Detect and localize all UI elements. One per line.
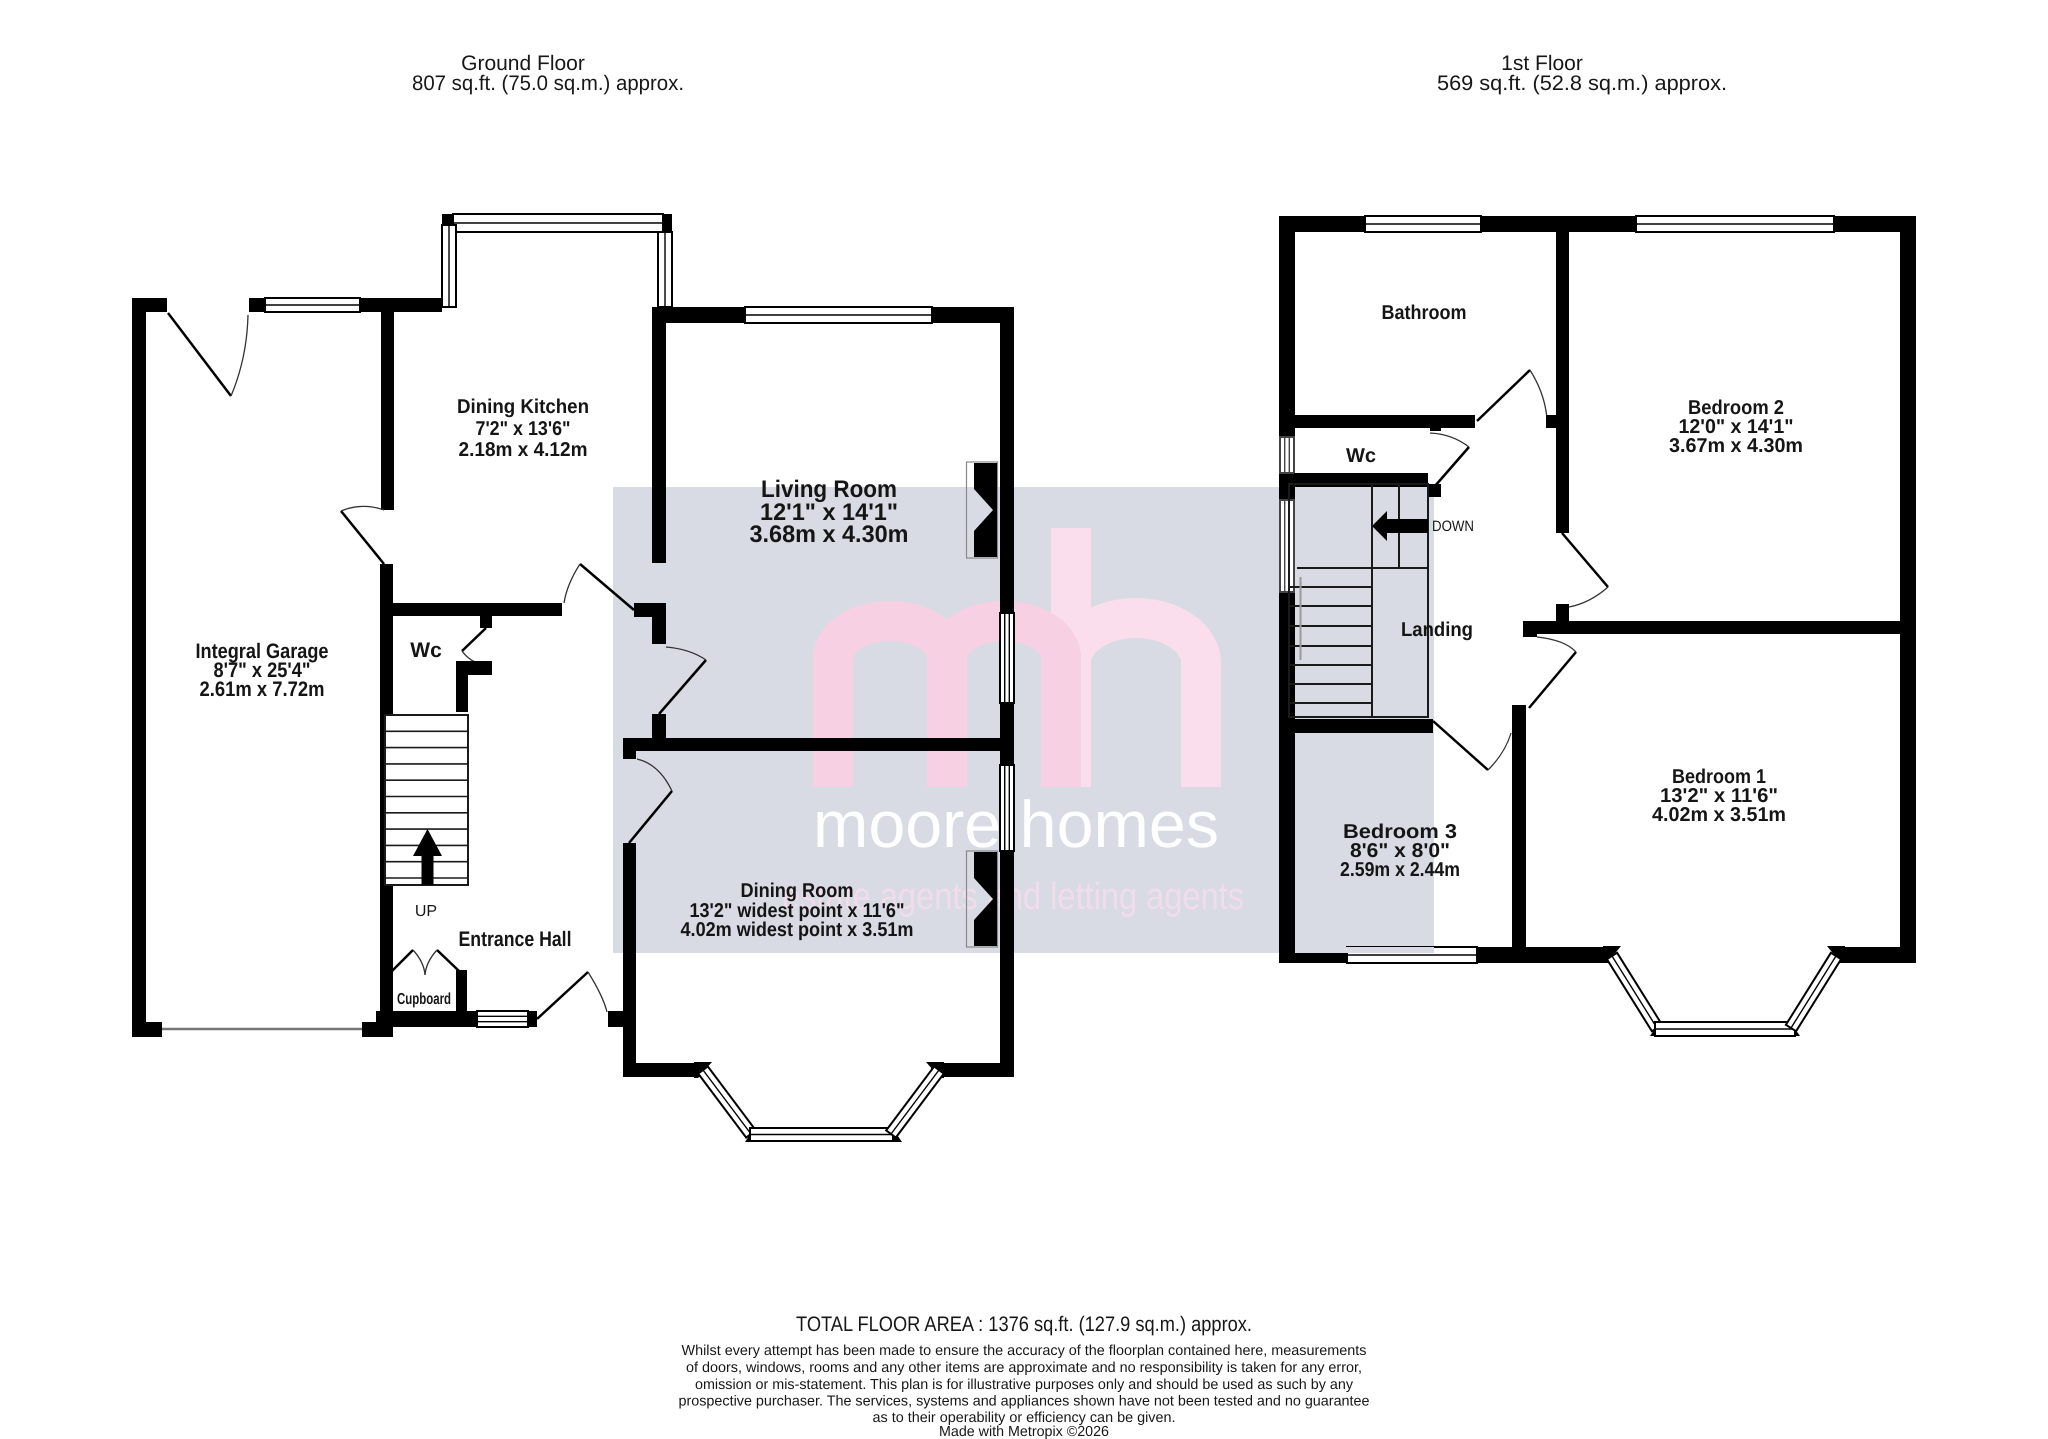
svg-text:4.02m widest point x 3.51m: 4.02m widest point x 3.51m [681, 919, 914, 941]
svg-text:Dining Kitchen: Dining Kitchen [457, 396, 589, 418]
svg-text:Made with Metropix ©2026: Made with Metropix ©2026 [939, 1424, 1109, 1439]
svg-text:807 sq.ft. (75.0 sq.m.) approx: 807 sq.ft. (75.0 sq.m.) approx. [412, 72, 684, 95]
svg-text:Whilst every attempt has been: Whilst every attempt has been made to en… [682, 1343, 1367, 1359]
svg-text:2.61m x 7.72m: 2.61m x 7.72m [200, 678, 325, 701]
svg-text:Wc: Wc [410, 639, 442, 662]
svg-text:Cupboard: Cupboard [397, 991, 451, 1008]
svg-text:DOWN: DOWN [1432, 518, 1474, 535]
svg-text:Entrance Hall: Entrance Hall [459, 928, 572, 951]
svg-text:Landing: Landing [1401, 619, 1473, 641]
svg-text:prospective purchaser. The ser: prospective purchaser. The services, sys… [679, 1394, 1370, 1410]
svg-text:TOTAL FLOOR AREA : 1376 sq.ft.: TOTAL FLOOR AREA : 1376 sq.ft. (127.9 sq… [796, 1313, 1252, 1336]
svg-text:Bathroom: Bathroom [1382, 302, 1467, 324]
svg-text:omission or mis-statement. Thi: omission or mis-statement. This plan is … [695, 1377, 1354, 1393]
svg-text:2.59m x 2.44m: 2.59m x 2.44m [1340, 859, 1460, 881]
svg-text:569 sq.ft. (52.8 sq.m.) approx: 569 sq.ft. (52.8 sq.m.) approx. [1437, 72, 1727, 95]
svg-text:Dining Room: Dining Room [741, 880, 854, 902]
svg-text:UP: UP [415, 903, 437, 920]
svg-text:of doors, windows, rooms and a: of doors, windows, rooms and any other i… [686, 1360, 1362, 1376]
svg-text:4.02m x 3.51m: 4.02m x 3.51m [1652, 804, 1786, 826]
svg-text:3.68m x 4.30m: 3.68m x 4.30m [750, 521, 909, 548]
svg-text:7'2" x 13'6": 7'2" x 13'6" [476, 418, 571, 440]
svg-text:Wc: Wc [1346, 445, 1376, 467]
svg-text:moore homes: moore homes [813, 787, 1219, 861]
svg-text:2.18m x 4.12m: 2.18m x 4.12m [459, 439, 588, 461]
svg-text:3.67m x 4.30m: 3.67m x 4.30m [1669, 435, 1803, 457]
